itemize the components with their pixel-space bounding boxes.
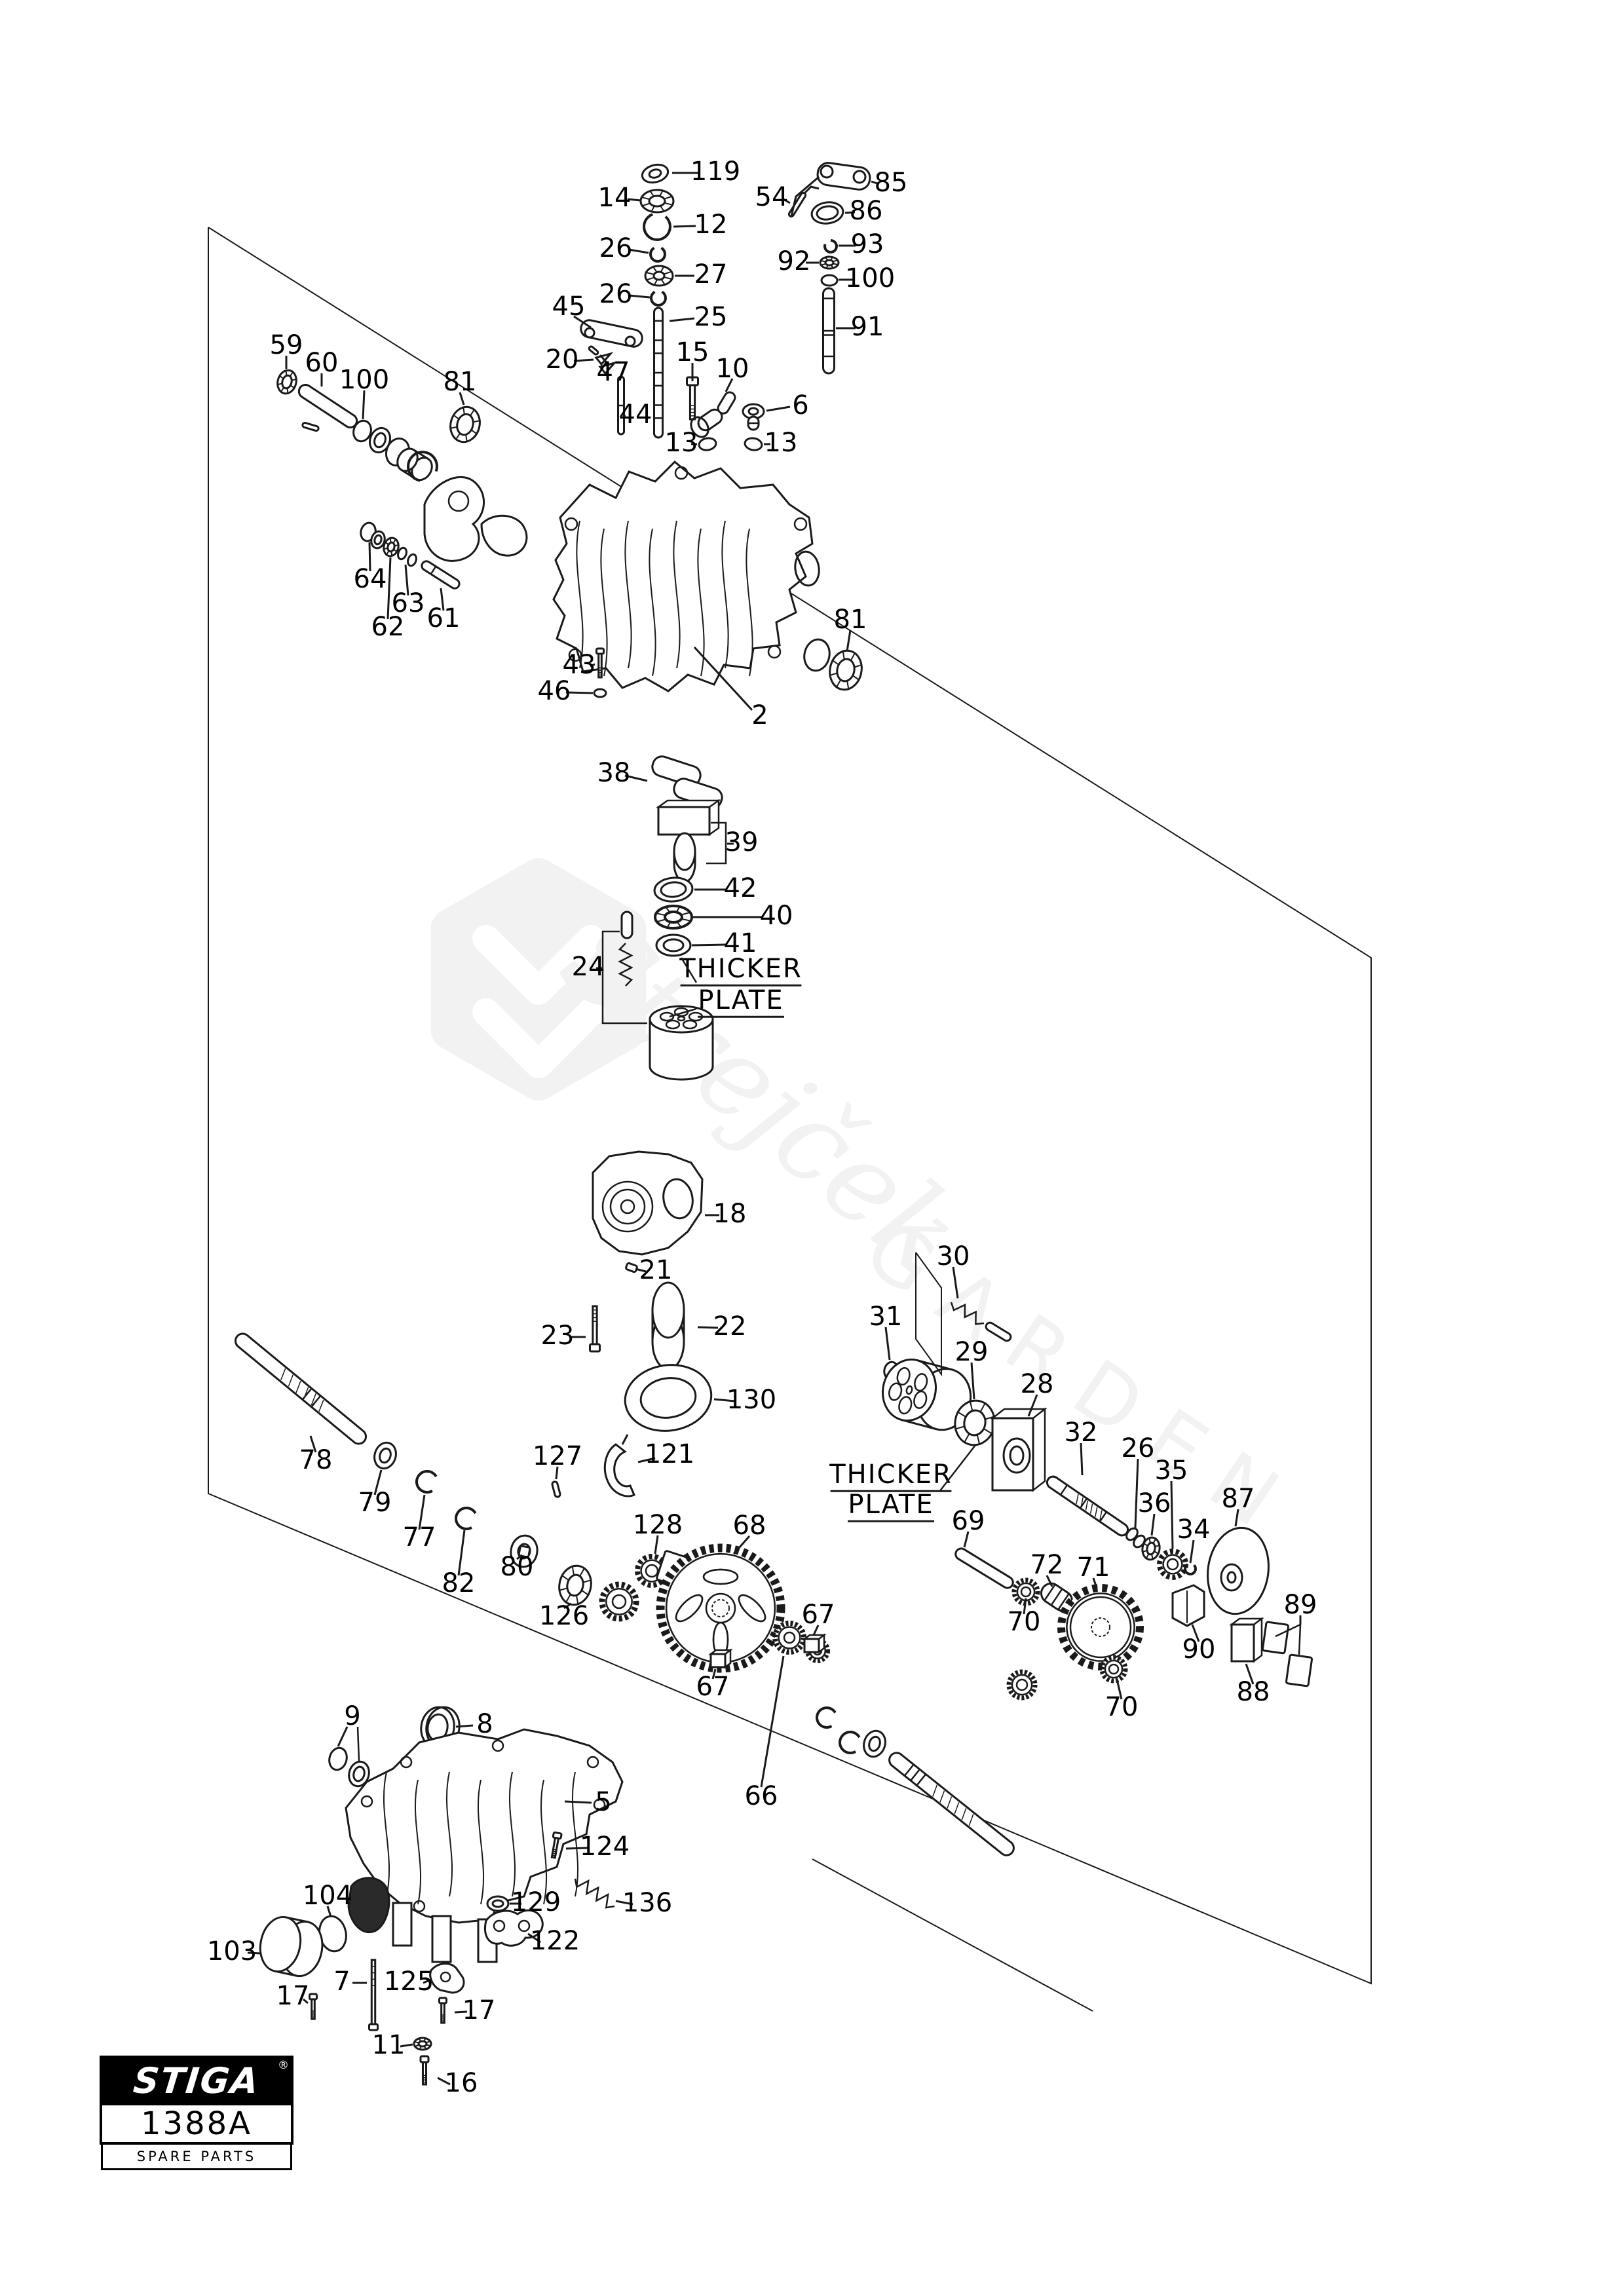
callout-13: 13 bbox=[665, 428, 698, 458]
part-number-label: 127 bbox=[533, 1441, 582, 1471]
callout-92: 92 bbox=[778, 246, 819, 276]
part-ring-81r-side bbox=[801, 637, 832, 673]
part-number-label: 129 bbox=[511, 1887, 561, 1917]
part-disc-87-hub bbox=[1221, 1564, 1242, 1590]
part-bolt-23 bbox=[590, 1306, 600, 1351]
part-pin-63b bbox=[406, 553, 417, 567]
part-shift-arm bbox=[425, 477, 484, 561]
part-number-label: 100 bbox=[339, 365, 389, 395]
part-housing-5-leg1 bbox=[393, 1903, 411, 1946]
part-sprocket-71 bbox=[1061, 1588, 1140, 1666]
part-number-label: 126 bbox=[539, 1601, 589, 1631]
note-line: THICKER bbox=[829, 1459, 953, 1490]
callout-78: 78 bbox=[299, 1436, 333, 1475]
callout-13: 13 bbox=[764, 428, 797, 458]
part-bearing-81l bbox=[447, 404, 483, 445]
part-pin-60 bbox=[302, 423, 319, 432]
part-shaft-61 bbox=[420, 559, 461, 590]
part-shift-arm2 bbox=[482, 516, 527, 555]
part-number-label: 68 bbox=[733, 1511, 766, 1541]
callout-91: 91 bbox=[836, 312, 884, 342]
callout-121: 121 bbox=[638, 1439, 694, 1469]
part-wedge-90 bbox=[1173, 1585, 1204, 1626]
callout-24: 24 bbox=[572, 952, 605, 982]
callout-leader-5 bbox=[565, 1801, 592, 1803]
part-number-label: 5 bbox=[595, 1787, 611, 1817]
part-ring-39 bbox=[674, 833, 695, 882]
exploded-parts-diagram: StrejčekGARDEN11914122627262545204744151… bbox=[0, 0, 1624, 2296]
callout-16: 16 bbox=[438, 2068, 478, 2098]
callout-leader-25 bbox=[670, 318, 694, 321]
part-fitting-125 bbox=[430, 1964, 464, 1993]
part-number-label: 10 bbox=[716, 354, 749, 384]
callout-60: 60 bbox=[305, 348, 339, 386]
callout-128: 128 bbox=[633, 1510, 683, 1554]
part-number-label: 92 bbox=[778, 246, 811, 276]
callout-44: 44 bbox=[619, 400, 652, 430]
part-fork-121 bbox=[605, 1444, 634, 1496]
part-key-21 bbox=[626, 1263, 637, 1273]
part-number-label: 72 bbox=[1030, 1550, 1064, 1580]
part-number-label: 128 bbox=[633, 1510, 683, 1540]
part-8 bbox=[575, 1879, 614, 1908]
part-bolt-7 bbox=[369, 1960, 378, 2030]
callout-61: 61 bbox=[427, 588, 461, 633]
part-number-label: 6 bbox=[792, 390, 808, 421]
part-cube-67b bbox=[711, 1650, 730, 1667]
part-number-label: 27 bbox=[694, 259, 728, 290]
part-number-label: 103 bbox=[207, 1936, 257, 1967]
callout-leader-31 bbox=[886, 1327, 890, 1360]
part-number-label: 15 bbox=[676, 337, 709, 367]
part-cylinder-22 bbox=[652, 1283, 684, 1369]
part-number-label: 80 bbox=[500, 1552, 534, 1582]
part-number-label: 11 bbox=[372, 2030, 406, 2060]
callout-88: 88 bbox=[1237, 1664, 1270, 1707]
part-number-label: 26 bbox=[599, 279, 633, 309]
part-number-label: 81 bbox=[444, 367, 477, 397]
part-number-label: 136 bbox=[622, 1888, 672, 1918]
part-pump-18 bbox=[593, 1152, 702, 1254]
part-nut-46 bbox=[594, 689, 606, 697]
part-block-28 bbox=[992, 1409, 1045, 1490]
part-snapring-12 bbox=[644, 214, 670, 240]
part-number-label: 78 bbox=[299, 1445, 333, 1475]
part-clip-26b bbox=[651, 292, 666, 306]
brand-logo: STIGA ® bbox=[100, 2056, 293, 2105]
part-number-label: 39 bbox=[725, 827, 759, 857]
part-housing-5-leg2 bbox=[432, 1916, 451, 1962]
part-number-label: 86 bbox=[850, 196, 883, 226]
part-ring-41 bbox=[656, 935, 690, 956]
part-pin-47 bbox=[588, 346, 599, 356]
callout-70: 70 bbox=[1105, 1682, 1139, 1722]
brand-model: 1388A bbox=[100, 2105, 293, 2145]
callout-6: 6 bbox=[766, 390, 809, 421]
part-number-label: 21 bbox=[639, 1255, 673, 1285]
part-bearing-40 bbox=[655, 906, 692, 928]
callout-67: 67 bbox=[802, 1600, 835, 1635]
callout-31: 31 bbox=[869, 1302, 903, 1360]
part-number-label: 104 bbox=[303, 1881, 352, 1911]
part-number-label: 59 bbox=[270, 330, 303, 360]
part-number-label: 125 bbox=[384, 1967, 434, 1997]
callout-15: 15 bbox=[676, 337, 709, 381]
callout-27: 27 bbox=[675, 259, 727, 290]
callout-leader-8 bbox=[456, 1725, 473, 1727]
callout-125: 125 bbox=[384, 1967, 434, 1997]
part-number-label: 63 bbox=[392, 588, 425, 618]
part-clip-26a bbox=[651, 248, 665, 262]
callout-leader-62 bbox=[388, 557, 390, 619]
part-cclip-82b bbox=[840, 1732, 859, 1753]
callout-104: 104 bbox=[303, 1881, 352, 1917]
callout-20: 20 bbox=[546, 345, 594, 375]
part-number-label: 91 bbox=[851, 312, 884, 342]
part-axis-76 bbox=[812, 1859, 1093, 2011]
part-number-label: 89 bbox=[1284, 1590, 1317, 1620]
part-number-label: 8 bbox=[476, 1709, 493, 1739]
diagram-canvas: StrejčekGARDEN11914122627262545204744151… bbox=[0, 0, 1624, 2296]
callout-leader-29 bbox=[972, 1363, 974, 1399]
part-block-88 bbox=[1232, 1619, 1262, 1661]
callout-64: 64 bbox=[354, 542, 387, 594]
part-number-label: 17 bbox=[463, 1995, 496, 2025]
brand-registered-icon: ® bbox=[278, 2059, 289, 2072]
part-shaft-32 bbox=[1045, 1475, 1130, 1538]
part-number-label: 122 bbox=[530, 1926, 580, 1956]
part-nut-129 bbox=[487, 1896, 508, 1911]
part-number-label: 16 bbox=[445, 2068, 478, 2098]
callout-54: 54 bbox=[755, 182, 790, 212]
part-number-label: 46 bbox=[538, 676, 571, 706]
part-number-label: 24 bbox=[572, 952, 605, 982]
part-plate-89b bbox=[1286, 1655, 1312, 1686]
callout-86: 86 bbox=[845, 196, 882, 226]
part-bolt-15 bbox=[687, 377, 698, 419]
part-number-label: 20 bbox=[546, 345, 579, 375]
callout-18: 18 bbox=[705, 1199, 746, 1229]
part-cup-86 bbox=[810, 200, 844, 225]
part-number-label: 17 bbox=[276, 1981, 310, 2011]
part-number-label: 119 bbox=[690, 157, 740, 187]
callout-72: 72 bbox=[1030, 1550, 1064, 1587]
part-washer-59 bbox=[275, 368, 299, 396]
callout-63: 63 bbox=[392, 565, 425, 618]
callout-103: 103 bbox=[207, 1936, 261, 1967]
part-shaft-69 bbox=[954, 1547, 1015, 1590]
part-shaft-76 bbox=[886, 1750, 1017, 1858]
callout-126: 126 bbox=[539, 1601, 589, 1631]
callout-119: 119 bbox=[672, 157, 740, 187]
part-gear-35 bbox=[1160, 1551, 1186, 1577]
callout-79: 79 bbox=[358, 1470, 392, 1518]
part-number-label: 31 bbox=[869, 1302, 903, 1332]
part-cap-103 bbox=[255, 1913, 327, 1980]
callout-40: 40 bbox=[693, 901, 793, 931]
part-number-label: 69 bbox=[952, 1506, 985, 1536]
callout-23: 23 bbox=[541, 1321, 586, 1351]
part-number-label: 87 bbox=[1222, 1484, 1255, 1514]
part-number-label: 30 bbox=[937, 1241, 970, 1271]
part-cap-39 bbox=[658, 800, 719, 835]
callout-90: 90 bbox=[1182, 1625, 1216, 1665]
part-number-label: 61 bbox=[427, 603, 461, 633]
part-shaft-91 bbox=[823, 288, 835, 373]
part-number-label: 67 bbox=[696, 1672, 730, 1702]
note-line: THICKER bbox=[679, 954, 803, 984]
part-ring-119 bbox=[640, 162, 670, 185]
part-number-label: 18 bbox=[713, 1199, 747, 1229]
part-number-label: 7 bbox=[333, 1967, 350, 1997]
part-number-label: 70 bbox=[1008, 1607, 1041, 1637]
callout-136: 136 bbox=[616, 1888, 672, 1918]
part-number-label: 44 bbox=[619, 400, 652, 430]
part-number-label: 35 bbox=[1155, 1456, 1188, 1486]
callout-69: 69 bbox=[952, 1506, 985, 1547]
callout-89: 89 bbox=[1284, 1590, 1317, 1625]
part-number-label: 54 bbox=[755, 182, 789, 212]
part-housing-5-boss bbox=[349, 1878, 389, 1932]
part-shaft-78 bbox=[233, 1331, 369, 1447]
callout-100: 100 bbox=[839, 263, 895, 293]
note-line: PLATE bbox=[848, 1490, 934, 1520]
part-number-label: 36 bbox=[1138, 1488, 1171, 1518]
part-cclip-77a bbox=[417, 1471, 436, 1492]
part-number-label: 85 bbox=[875, 168, 908, 198]
callout-67: 67 bbox=[696, 1669, 730, 1702]
callout-93: 93 bbox=[839, 229, 884, 259]
part-plug-6-body bbox=[748, 417, 759, 430]
part-number-label: 81 bbox=[834, 605, 867, 635]
part-bearing-14 bbox=[641, 190, 673, 212]
part-bevel-66a bbox=[775, 1623, 804, 1652]
callout-85: 85 bbox=[871, 168, 907, 198]
part-screw-17b bbox=[440, 1998, 447, 2023]
callout-122: 122 bbox=[528, 1926, 580, 1956]
part-number-label: 64 bbox=[354, 564, 387, 594]
part-clip-93 bbox=[825, 240, 837, 252]
part-ring-42 bbox=[654, 876, 694, 903]
part-screw-16 bbox=[421, 2056, 428, 2084]
part-pin-127 bbox=[552, 1481, 561, 1497]
callout-42: 42 bbox=[694, 873, 757, 903]
callout-82: 82 bbox=[442, 1530, 476, 1598]
callout-leader-35 bbox=[1171, 1481, 1173, 1549]
part-gear-70c bbox=[1009, 1672, 1035, 1698]
callout-129: 129 bbox=[510, 1887, 561, 1917]
part-number-label: 42 bbox=[724, 873, 757, 903]
callout-59: 59 bbox=[270, 330, 303, 369]
callout-22: 22 bbox=[698, 1311, 746, 1342]
part-number-label: 29 bbox=[955, 1337, 989, 1367]
part-number-label: 14 bbox=[598, 183, 632, 213]
part-number-label: 66 bbox=[745, 1781, 778, 1811]
part-bracket-9 bbox=[358, 1727, 359, 1761]
callout-26: 26 bbox=[599, 233, 649, 263]
part-oring-13b bbox=[744, 437, 763, 451]
part-ring-9a bbox=[327, 1746, 349, 1772]
part-number-label: 124 bbox=[580, 1832, 630, 1862]
part-washer-92 bbox=[820, 257, 839, 269]
callout-11: 11 bbox=[372, 2030, 413, 2060]
part-number-label: 13 bbox=[765, 428, 798, 458]
part-number-label: 12 bbox=[694, 210, 728, 240]
callout-81: 81 bbox=[444, 367, 477, 405]
callout-39: 39 bbox=[725, 827, 759, 857]
part-number-label: 70 bbox=[1105, 1692, 1139, 1722]
part-number-label: 2 bbox=[751, 700, 768, 730]
part-number-label: 60 bbox=[305, 348, 339, 378]
brand-name: STIGA bbox=[132, 2060, 262, 2101]
part-washer-11 bbox=[414, 2038, 431, 2050]
part-number-label: 34 bbox=[1177, 1515, 1211, 1545]
callout-32: 32 bbox=[1065, 1418, 1098, 1475]
part-plate-89a bbox=[1262, 1622, 1289, 1653]
part-cclip-82a bbox=[456, 1508, 476, 1529]
callout-71: 71 bbox=[1077, 1553, 1110, 1588]
callout-leader-6 bbox=[766, 407, 790, 411]
callout-81: 81 bbox=[834, 605, 867, 651]
part-number-label: 79 bbox=[358, 1488, 392, 1518]
part-number-label: 23 bbox=[541, 1321, 575, 1351]
part-washer-27 bbox=[645, 266, 673, 286]
callout-47: 47 bbox=[597, 355, 630, 387]
part-number-label: 45 bbox=[552, 292, 586, 322]
part-number-label: 93 bbox=[851, 229, 884, 259]
callout-leader-32 bbox=[1081, 1443, 1082, 1475]
part-clip-34 bbox=[1185, 1564, 1196, 1574]
part-cclip-77b bbox=[817, 1708, 835, 1727]
part-number-label: 100 bbox=[845, 263, 895, 293]
part-fork-121-stem bbox=[622, 1435, 628, 1444]
part-number-label: 28 bbox=[1021, 1369, 1054, 1399]
part-oring-13a bbox=[698, 437, 717, 451]
callout-leader-41 bbox=[692, 945, 727, 945]
callout-21: 21 bbox=[635, 1255, 672, 1285]
part-cube-67a bbox=[804, 1635, 824, 1652]
brand-caption: SPARE PARTS bbox=[101, 2145, 292, 2170]
callout-130: 130 bbox=[714, 1385, 776, 1415]
part-bearing-81r bbox=[826, 648, 865, 693]
callout-38: 38 bbox=[597, 758, 647, 788]
callout-10: 10 bbox=[716, 354, 749, 392]
part-number-label: 25 bbox=[694, 302, 728, 332]
part-number-label: 38 bbox=[597, 758, 631, 788]
part-gear-70b bbox=[1102, 1657, 1125, 1681]
callout-77: 77 bbox=[403, 1495, 436, 1553]
callout-36: 36 bbox=[1138, 1488, 1171, 1535]
brand-block: STIGA ® 1388A SPARE PARTS bbox=[100, 2056, 293, 2170]
callout-17: 17 bbox=[276, 1981, 310, 2011]
part-number-label: 47 bbox=[597, 357, 630, 387]
part-number-label: 40 bbox=[760, 901, 793, 931]
callout-14: 14 bbox=[598, 183, 641, 213]
part-number-label: 121 bbox=[645, 1439, 694, 1469]
part-elbow-10b bbox=[716, 390, 737, 415]
callout-7: 7 bbox=[333, 1967, 367, 1997]
note-line: PLATE bbox=[698, 985, 784, 1015]
callout-leader-66 bbox=[761, 1656, 784, 1787]
part-number-label: 22 bbox=[713, 1311, 747, 1342]
part-bevel-126side bbox=[602, 1585, 636, 1619]
part-number-label: 82 bbox=[442, 1568, 476, 1598]
part-ring-130 bbox=[621, 1359, 716, 1436]
part-number-label: 71 bbox=[1077, 1553, 1110, 1583]
part-number-label: 13 bbox=[665, 428, 698, 458]
part-number-label: 9 bbox=[344, 1701, 360, 1731]
callout-17: 17 bbox=[455, 1995, 495, 2025]
callout-127: 127 bbox=[533, 1441, 582, 1479]
callout-12: 12 bbox=[673, 210, 727, 240]
part-number-label: 130 bbox=[727, 1385, 776, 1415]
part-shaft-25 bbox=[654, 308, 663, 438]
callout-46: 46 bbox=[538, 676, 593, 706]
part-oring-100r bbox=[821, 275, 837, 286]
part-screw-17a bbox=[310, 1994, 317, 2019]
part-number-label: 67 bbox=[802, 1600, 835, 1630]
callout-25: 25 bbox=[670, 302, 727, 332]
part-collar-79b bbox=[861, 1728, 889, 1760]
part-number-label: 90 bbox=[1182, 1634, 1216, 1665]
part-number-label: 26 bbox=[1122, 1433, 1155, 1463]
callout-leader-12 bbox=[673, 226, 696, 227]
part-number-label: 32 bbox=[1065, 1418, 1098, 1448]
part-collar-79a bbox=[371, 1440, 400, 1471]
part-pin-24 bbox=[622, 912, 632, 938]
part-number-label: 26 bbox=[599, 233, 633, 263]
callout-80: 80 bbox=[500, 1552, 534, 1582]
part-number-label: 77 bbox=[403, 1522, 436, 1553]
part-number-label: 88 bbox=[1237, 1677, 1270, 1707]
callout-26: 26 bbox=[599, 279, 650, 309]
